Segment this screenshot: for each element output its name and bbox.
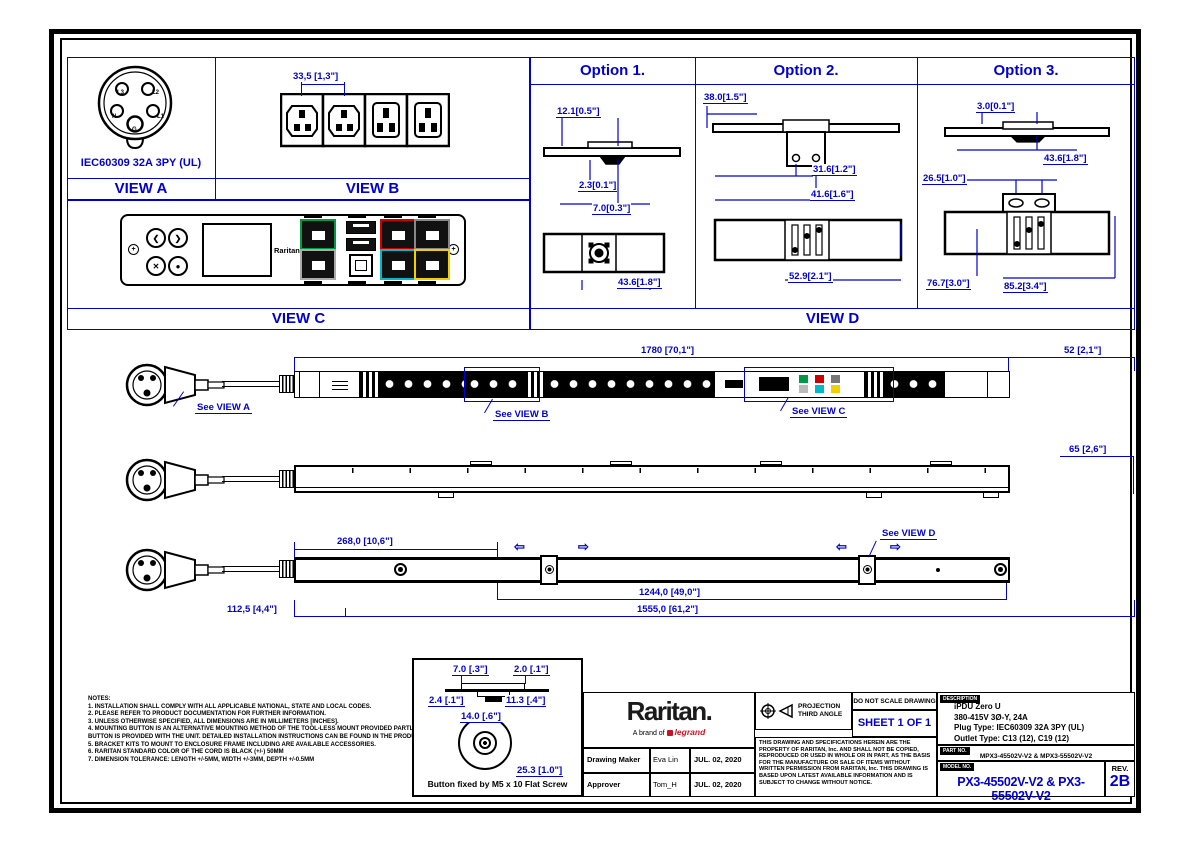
approver-label-cell: Approver: [583, 773, 650, 797]
maker-label: Drawing Maker: [587, 755, 640, 764]
cord-gland: [279, 470, 294, 488]
pin-label-g: G: [132, 127, 137, 135]
usb-b-port: [349, 254, 373, 277]
rev-label: REV.: [1106, 764, 1134, 773]
slide-arrow-left-icon: ⇦: [836, 540, 847, 553]
usb-a-port-bottom: [346, 238, 376, 251]
sheet-number: SHEET 1 OF 1: [858, 717, 931, 729]
legal-cell: THIS DRAWING AND SPECIFICATIONS HEREIN A…: [755, 737, 937, 797]
model-no-chip: MODEL NO.: [940, 763, 974, 771]
mounting-bracket: [858, 555, 876, 585]
note-line: 7. DIMENSION TOLERANCE: LENGTH +/-5MM, W…: [88, 757, 410, 765]
rear-dim-ext: [497, 542, 498, 557]
view-b-dim-line: [301, 84, 344, 85]
approver-date-cell: JUL. 02, 2020: [690, 773, 755, 797]
mounting-bump: [930, 461, 952, 465]
option1-dim-3: 7.0[0.3"]: [592, 203, 631, 215]
pdu-endcap: [987, 372, 1009, 397]
pin-label-n: N: [112, 114, 116, 122]
bracket-hole: [863, 565, 872, 574]
outlet-group: [544, 372, 714, 397]
view-b-dim: 33,5 [1,3"]: [292, 71, 339, 82]
raritan-logo: Raritan.: [584, 696, 754, 726]
front-dim-total: 1780 [70,1"]: [640, 345, 695, 356]
side-dim-depth: 65 [2,6"]: [1068, 444, 1107, 455]
pin-label-l2: L2: [152, 90, 159, 98]
maker-label-cell: Drawing Maker: [583, 748, 650, 773]
legal-text: THIS DRAWING AND SPECIFICATIONS HEREIN A…: [759, 740, 933, 786]
option2-dim-2: 31.6[1.2"]: [812, 164, 857, 176]
model-no-value: PX3-45502V-V2 & PX3-55502V-V2: [938, 775, 1104, 803]
button-dim-3: 2.4 [.1"]: [428, 695, 465, 707]
see-view-c-label: See VIEW C: [790, 406, 847, 418]
sheet-cell: SHEET 1 OF 1: [852, 710, 937, 737]
drawing-sheet: VIEW A VIEW B L3 L2 N L1 G IEC60309 32A …: [0, 0, 1191, 842]
rev-cell: REV. 2B: [1105, 761, 1135, 797]
option3-dim-5: 85.2[3.4"]: [1003, 281, 1048, 293]
option2-dim-4: 52.9[2.1"]: [788, 271, 833, 283]
note-line: 5. BRACKET KITS TO MOUNT TO ENCLOSURE FR…: [88, 742, 410, 750]
rear-dim-ext: [1006, 583, 1007, 600]
projection-cell: PROJECTION THIRD ANGLE: [755, 692, 852, 730]
usb-a-port-top: [346, 221, 376, 234]
pin-label-l1: L1: [157, 114, 164, 122]
rear-dim-span: 1244,0 [49,0"]: [638, 587, 701, 598]
option2-dim-1: 38.0[1.5"]: [703, 92, 748, 104]
ethernet-port-green: [300, 219, 336, 250]
option3-dim-4: 76.7[3.0"]: [926, 278, 971, 290]
expansion-port-yellow: [414, 249, 450, 280]
side-view-ticks: [296, 468, 1008, 473]
rear-dim-offset: 268,0 [10,6"]: [336, 536, 394, 547]
mounting-bump: [760, 461, 782, 465]
note-line: 6. RARITAN STANDARD COLOR OF THE CORD IS…: [88, 749, 410, 757]
no-scale-cell: DO NOT SCALE DRAWING: [852, 692, 937, 710]
description-line: Plug Type: IEC60309 32A 3PY (UL): [954, 723, 1134, 734]
port-label-bar: [384, 281, 402, 284]
part-no-cell: PART NO. MPX3-45502V-V2 & MPX3-55502V-V2: [937, 745, 1135, 761]
screw-left-icon: +: [128, 244, 139, 255]
side-dim-ext: [1133, 456, 1134, 494]
port-label-bar: [304, 281, 322, 284]
legrand-logo-icon: [667, 730, 673, 736]
option3-dim-1: 3.0[0.1"]: [976, 101, 1015, 113]
projection-line2: THIRD ANGLE: [798, 711, 842, 719]
side-view-groove: [296, 487, 1008, 489]
view-a-caption: IEC60309 32A 3PY (UL): [67, 157, 215, 169]
maker-date: JUL. 02, 2020: [694, 755, 742, 764]
panel-select-button: ●: [168, 256, 188, 276]
rear-dim-line-overall: [294, 616, 1135, 617]
port-label-bar: [418, 215, 436, 218]
port-label-bar: [348, 281, 366, 284]
brand-sub-legrand: legrand: [675, 727, 706, 737]
pdu-front-view: [294, 371, 1010, 398]
rear-dim-overall: 1555,0 [61,2"]: [636, 604, 699, 615]
front-dim-tick: [1008, 357, 1009, 371]
rear-dot: [936, 568, 940, 572]
notes-title: NOTES:: [88, 696, 410, 704]
view-b-dim-ext-right: [344, 82, 345, 96]
pin-label-l3: L3: [117, 90, 124, 98]
button-dim-4: 11.3 [.4"]: [505, 695, 546, 707]
mounting-foot: [983, 492, 999, 498]
approver-label: Approver: [587, 780, 620, 789]
view-d-label: VIEW D: [530, 310, 1135, 327]
view-c-highlight-box: [744, 367, 894, 402]
panel-cancel-button: ✕: [146, 256, 166, 276]
mounting-bracket: [540, 555, 558, 585]
pdu-segment: [299, 372, 319, 397]
power-plug-drawing: [125, 545, 225, 595]
pdu-rating-label: [319, 372, 359, 397]
bracket-hole: [545, 565, 554, 574]
usb-b-port-inner: [355, 260, 367, 271]
see-view-d-label: See VIEW D: [880, 528, 937, 540]
front-dim-tick: [294, 357, 295, 371]
part-no-chip: PART NO.: [940, 747, 970, 755]
feature-port-red: [380, 219, 416, 250]
option1-dim-4: 43.6[1.8"]: [617, 277, 662, 289]
mounting-bump: [470, 461, 492, 465]
console-port-gray: [414, 219, 450, 250]
view-c-label: VIEW C: [67, 310, 530, 327]
rear-dim-line-span: [497, 599, 1006, 600]
port-label-bar: [418, 281, 436, 284]
sensor-port-cyan: [380, 249, 416, 280]
note-line: 4. MOUNTING BUTTON IS AN ALTERNATIVE MOU…: [88, 726, 410, 734]
option-3-title: Option 3.: [917, 62, 1135, 79]
brand-sub-prefix: A brand of: [633, 730, 665, 737]
description-line: Outlet Type: C13 (12), C19 (12): [954, 734, 1134, 745]
button-detail-caption: Button fixed by M5 x 10 Flat Screw: [413, 779, 582, 789]
description-cell: DESCRIPTION iPDU Zero U 380-415V 3Ø-Y, 2…: [937, 692, 1135, 745]
maker-name: Eva Lin: [653, 755, 678, 764]
mounting-foot: [866, 492, 882, 498]
button-face-inner: [479, 737, 491, 749]
mounting-bump: [610, 461, 632, 465]
cord-gland: [279, 375, 294, 393]
cord-gland: [279, 560, 294, 578]
maker-date-cell: JUL. 02, 2020: [690, 748, 755, 773]
option-1-title: Option 1.: [530, 62, 695, 79]
option1-dim-2: 2.3[0.1"]: [578, 180, 617, 192]
ethernet-port-silver: [300, 249, 336, 280]
mounting-button: [994, 563, 1007, 576]
option3-dim-3: 26.5[1.0"]: [922, 173, 967, 185]
rear-dim-start: 112,5 [4,4"]: [226, 604, 278, 615]
button-profile-stem: [485, 697, 502, 702]
logo-cell: Raritan. A brand of legrand: [583, 692, 755, 748]
description-line: 380-415V 3Ø-Y, 24A: [954, 713, 1134, 724]
notes-block: NOTES: 1. INSTALLATION SHALL COMPLY WITH…: [88, 696, 410, 764]
front-dim-tick: [1134, 357, 1135, 371]
panel-brand-text: Raritan: [274, 246, 300, 255]
note-line: 2. PLEASE REFER TO PRODUCT DOCUMENTATION…: [88, 711, 410, 719]
slide-arrow-right-icon: ⇨: [890, 540, 901, 553]
view-a-connector-drawing: [82, 60, 192, 152]
view-b-highlight-box: [464, 367, 540, 402]
side-dim-line: [1060, 456, 1134, 457]
approver-name: Tom_H: [653, 780, 677, 789]
button-dim-ext: [525, 675, 526, 684]
port-label-bar: [384, 215, 402, 218]
mounting-button: [394, 563, 407, 576]
description-chip: DESCRIPTION: [940, 695, 980, 703]
approver-date: JUL. 02, 2020: [694, 780, 742, 789]
see-view-a-label: See VIEW A: [195, 402, 252, 414]
rear-dim-ext: [497, 583, 498, 600]
description-line: iPDU Zero U: [954, 702, 1134, 713]
rear-dim-ext: [1134, 600, 1135, 617]
mounting-foot: [438, 492, 454, 498]
button-dim-2: 2.0 [.1"]: [513, 664, 550, 676]
front-dim-end: 52 [2,1"]: [1063, 345, 1102, 356]
option-1-drawing: [530, 84, 695, 308]
panel-right-arrow-button: ❯: [168, 228, 188, 248]
button-dim-1: 7.0 [.3"]: [452, 664, 489, 676]
model-no-cell: MODEL NO. PX3-45502V-V2 & PX3-55502V-V2: [937, 761, 1105, 797]
button-dim-6: 25.3 [1.0"]: [516, 765, 563, 777]
third-angle-projection-icon: [760, 702, 794, 720]
approver-name-cell: Tom_H: [650, 773, 690, 797]
option3-dim-2: 43.6[1.8"]: [1043, 153, 1088, 165]
maker-name-cell: Eva Lin: [650, 748, 690, 773]
note-line: 3. UNLESS OTHERWISE SPECIFIED, ALL DIMEN…: [88, 719, 410, 727]
note-line: BUTTON IS PROVIDED WITH THE UNIT. DETAIL…: [88, 734, 410, 742]
outlet-group: [379, 372, 464, 397]
no-scale-text: DO NOT SCALE DRAWING: [853, 698, 935, 705]
circuit-breaker: [359, 372, 379, 397]
view-b-outlets-drawing: [280, 93, 450, 148]
rear-dim-line-offset: [294, 549, 497, 550]
button-profile-flange: [461, 683, 525, 690]
view-b-label: VIEW B: [215, 180, 530, 197]
rear-dim-ext: [294, 600, 295, 617]
option-3-drawing: [917, 84, 1135, 308]
slide-arrow-left-icon: ⇦: [514, 540, 525, 553]
projection-line1: PROJECTION: [798, 703, 842, 711]
port-label-bar: [304, 215, 322, 218]
button-dim-ext: [461, 675, 462, 684]
option2-dim-3: 41.6[1.6"]: [810, 189, 855, 201]
option1-dim-1: 12.1[0.5"]: [556, 106, 601, 118]
rev-value: 2B: [1106, 773, 1134, 791]
pdu-side-view: [294, 465, 1010, 493]
pdu-segment: [944, 372, 987, 397]
note-line: 1. INSTALLATION SHALL COMPLY WITH ALL AP…: [88, 704, 410, 712]
panel-left-arrow-button: ❮: [146, 228, 166, 248]
option-2-title: Option 2.: [695, 62, 917, 79]
panel-display: [202, 223, 272, 277]
slide-arrow-right-icon: ⇨: [578, 540, 589, 553]
view-a-label: VIEW A: [67, 180, 215, 197]
button-dim-5: 14.0 [.6"]: [460, 711, 502, 723]
port-label-bar: [348, 215, 366, 218]
power-plug-drawing: [125, 455, 225, 505]
see-view-b-label: See VIEW B: [493, 409, 550, 421]
